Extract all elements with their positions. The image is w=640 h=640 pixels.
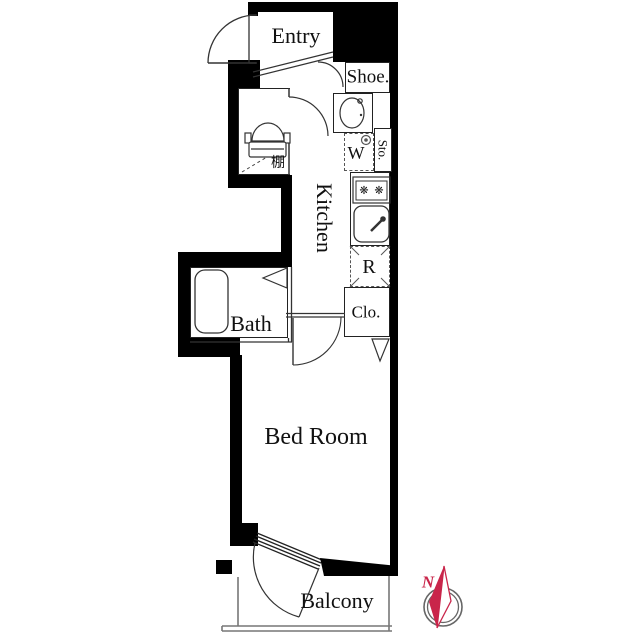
wall-bottom-left-block bbox=[230, 523, 258, 546]
wall-corner-left bbox=[228, 60, 260, 90]
wall-bedroom-left bbox=[230, 355, 242, 527]
wall-bottom-right-slab bbox=[320, 558, 398, 576]
label-shelf: 棚 bbox=[271, 157, 285, 171]
wall-bath-left bbox=[178, 252, 190, 345]
bedroom-door-arc bbox=[293, 317, 341, 365]
label-fridge: R bbox=[362, 257, 375, 277]
kitchen-counter bbox=[350, 172, 390, 246]
label-bedroom: Bed Room bbox=[264, 425, 367, 449]
label-entry: Entry bbox=[272, 25, 321, 47]
washroom-door-arc bbox=[318, 62, 343, 87]
entry-door-arc bbox=[208, 15, 257, 63]
label-washer: W bbox=[348, 144, 365, 162]
label-shoe: Shoe. bbox=[347, 68, 390, 87]
balcony-window-band bbox=[253, 533, 322, 569]
wall-top bbox=[248, 2, 398, 12]
vanity-box bbox=[333, 93, 373, 133]
toilet-door-arc bbox=[289, 88, 328, 175]
wall-right bbox=[390, 12, 398, 575]
closet-folding-door-icon bbox=[372, 339, 389, 361]
wall-bath-top bbox=[178, 252, 292, 267]
wall-corridor-left bbox=[281, 186, 292, 256]
wall-toilet-left bbox=[228, 88, 238, 178]
label-balcony: Balcony bbox=[300, 590, 373, 612]
label-kitchen: Kitchen bbox=[313, 183, 335, 253]
label-storage: Sto. bbox=[377, 140, 390, 161]
floor-plan: ❋ ❋ bbox=[0, 0, 640, 640]
wall-right-of-entry bbox=[333, 12, 398, 62]
label-bath: Bath bbox=[230, 313, 272, 335]
plan-linework: ❋ ❋ bbox=[0, 0, 640, 640]
label-closet: Clo. bbox=[352, 304, 381, 321]
label-north: N bbox=[422, 574, 434, 591]
entry-step-line bbox=[253, 52, 333, 77]
wall-top-left-stub bbox=[248, 2, 258, 16]
wall-bottom-left-stub bbox=[216, 560, 232, 574]
